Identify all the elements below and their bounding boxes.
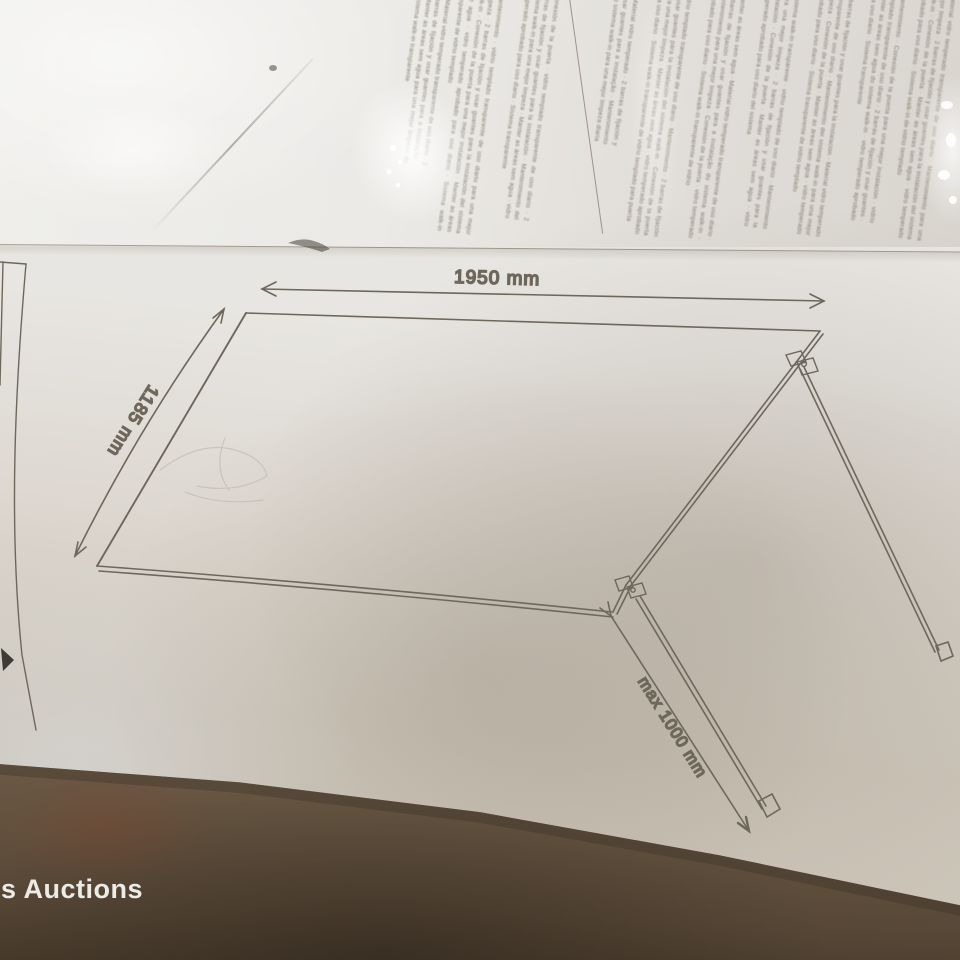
wrinkle-marks xyxy=(160,438,267,502)
bracket-bottom xyxy=(615,576,646,598)
support-bar-lower-endcap xyxy=(759,794,780,817)
width-dimension-arrow xyxy=(262,282,824,308)
glass-panel-outline xyxy=(97,313,823,617)
watermark-text: s Auctions xyxy=(1,874,143,905)
support-bar-upper-endcap xyxy=(936,642,953,661)
side-dimension-arrow xyxy=(75,309,224,556)
small-arrow-mark xyxy=(1,648,14,671)
crease-spot xyxy=(269,65,277,71)
plastic-sparkles xyxy=(387,101,957,204)
support-bar-upper xyxy=(800,367,953,661)
depth-dimension-label: max 1000 mm xyxy=(634,674,710,782)
ink-smudge xyxy=(288,239,330,252)
width-dimension-label: 1950 mm xyxy=(454,267,541,290)
photo-of-instruction-sheet: Material vidro temperado transparente de… xyxy=(0,0,960,960)
